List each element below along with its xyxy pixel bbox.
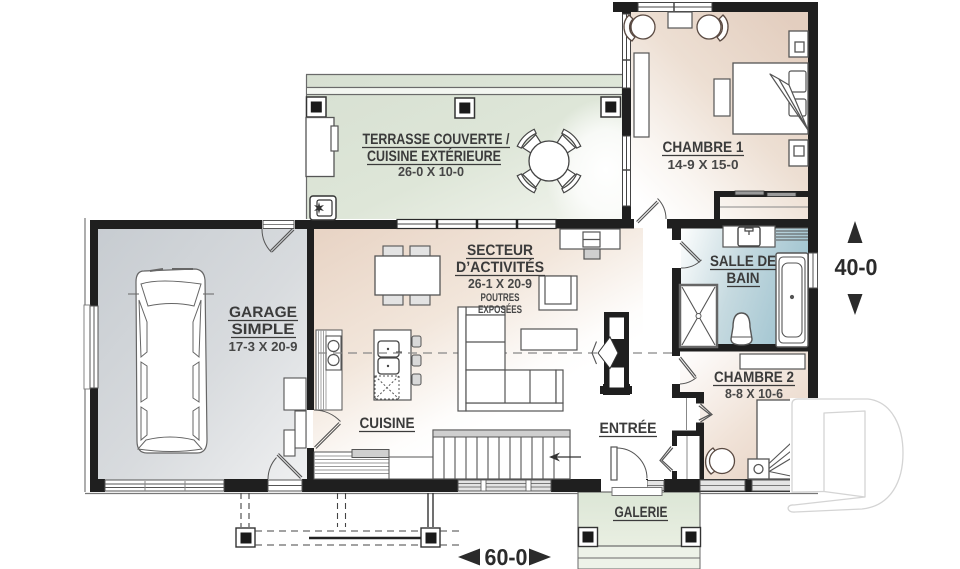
- svg-text:60-0: 60-0: [485, 544, 528, 569]
- svg-text:POUTRES: POUTRES: [481, 292, 520, 304]
- svg-text:8-8 X 10-6: 8-8 X 10-6: [725, 386, 783, 401]
- svg-text:14-9 X 15-0: 14-9 X 15-0: [668, 157, 739, 172]
- svg-text:GARAGE: GARAGE: [229, 304, 297, 321]
- svg-text:26-1 X 20-9: 26-1 X 20-9: [468, 276, 532, 291]
- svg-text:GALERIE: GALERIE: [615, 504, 668, 521]
- svg-text:CUISINE EXTÉRIEURE: CUISINE EXTÉRIEURE: [367, 147, 501, 165]
- svg-text:40-0: 40-0: [835, 254, 878, 280]
- svg-text:CHAMBRE 1: CHAMBRE 1: [663, 139, 744, 156]
- svg-text:17-3 X 20-9: 17-3 X 20-9: [229, 339, 298, 354]
- svg-text:BAIN: BAIN: [727, 270, 760, 287]
- svg-text:26-0 X 10-0: 26-0 X 10-0: [398, 164, 464, 179]
- svg-text:ENTRÉE: ENTRÉE: [600, 419, 657, 437]
- svg-text:D’ACTIVITÉS: D’ACTIVITÉS: [456, 258, 544, 276]
- svg-text:EXPOSÉES: EXPOSÉES: [478, 303, 522, 316]
- svg-text:SECTEUR: SECTEUR: [467, 242, 533, 259]
- svg-text:TERRASSE COUVERTE /: TERRASSE COUVERTE /: [363, 131, 511, 148]
- svg-text:SIMPLE: SIMPLE: [232, 321, 295, 338]
- svg-text:SALLE DE: SALLE DE: [710, 253, 776, 270]
- svg-text:CHAMBRE 2: CHAMBRE 2: [714, 369, 794, 386]
- svg-text:CUISINE: CUISINE: [360, 415, 415, 432]
